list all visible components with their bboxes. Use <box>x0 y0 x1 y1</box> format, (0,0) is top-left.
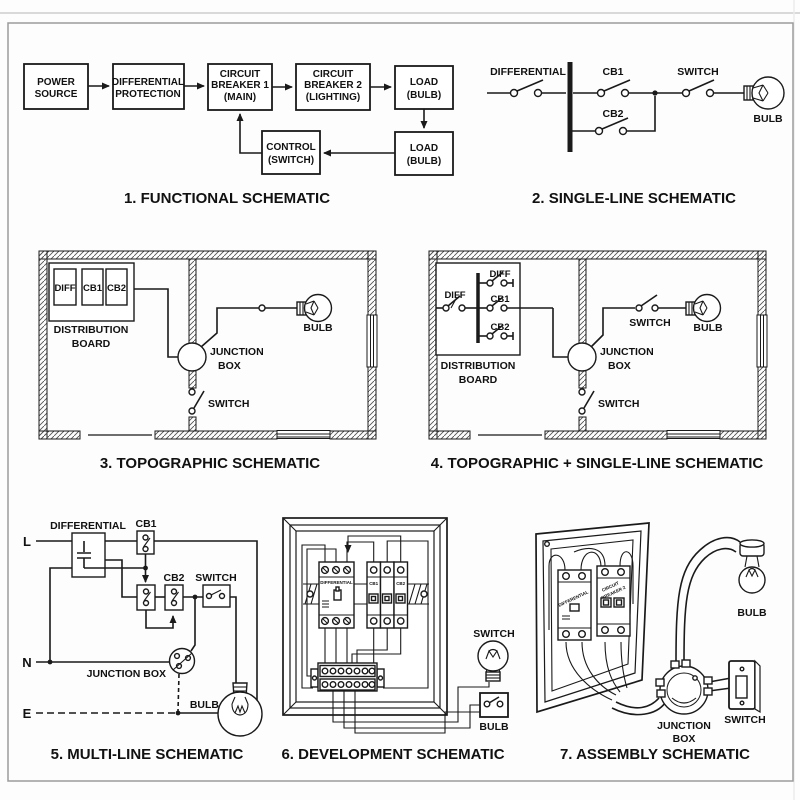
wall-switch <box>189 389 204 414</box>
panel-box <box>536 523 649 712</box>
section-functional-schematic: POWER SOURCE DIFFERENTIAL PROTECTION CIR… <box>24 64 453 207</box>
cb1-label: CB1 <box>602 66 623 78</box>
svg-text:PROTECTION: PROTECTION <box>115 89 181 100</box>
svg-text:LOAD: LOAD <box>410 143 438 154</box>
wall-switch-3d <box>729 661 760 712</box>
cb1-module-label: CB1 <box>369 581 378 586</box>
terminal-block <box>311 663 384 691</box>
caption-functional: 1. FUNCTIONAL SCHEMATIC <box>124 190 330 207</box>
svg-text:BREAKER 1: BREAKER 1 <box>211 80 269 91</box>
svg-text:DISTRIBUTION: DISTRIBUTION <box>54 324 129 336</box>
external-switch <box>480 693 508 717</box>
svg-text:CB2: CB2 <box>163 572 184 584</box>
svg-text:BOARD: BOARD <box>72 338 111 350</box>
section-assembly-schematic: DIFFERENTIAL CIRCUIT BREAKER 2 <box>536 523 767 763</box>
junction-box-3d <box>656 660 712 714</box>
wall-switch <box>579 389 594 414</box>
bulb-symbol <box>218 683 262 736</box>
caption-single-line: 2. SINGLE-LINE SCHEMATIC <box>532 190 736 207</box>
svg-text:CB1: CB1 <box>135 518 156 530</box>
svg-text:CIRCUIT: CIRCUIT <box>313 69 354 80</box>
cb1-contact <box>598 90 605 97</box>
bulb-label: BULB <box>190 699 220 711</box>
svg-text:SWITCH: SWITCH <box>195 572 236 584</box>
caption-topographic: 3. TOPOGRAPHIC SCHEMATIC <box>100 455 320 472</box>
cb2-module-label: CB2 <box>107 283 126 294</box>
cb2-module-label: CB2 <box>396 581 405 586</box>
diff-module-label: DIFF <box>54 283 75 294</box>
svg-text:DISTRIBUTION: DISTRIBUTION <box>441 360 516 372</box>
svg-text:JUNCTION: JUNCTION <box>600 346 654 358</box>
svg-text:BOX: BOX <box>218 360 241 372</box>
switch-contact <box>683 90 690 97</box>
svg-text:BREAKER 2: BREAKER 2 <box>304 80 362 91</box>
caption-assembly: 7. ASSEMBLY SCHEMATIC <box>560 746 750 763</box>
differential-module: DIFFERENTIAL <box>319 562 354 628</box>
svg-text:BOARD: BOARD <box>459 374 498 386</box>
caption-development: 6. DEVELOPMENT SCHEMATIC <box>281 746 504 763</box>
board-to-junction-wire <box>134 289 178 357</box>
switch-label: SWITCH <box>473 628 514 640</box>
section-single-line-schematic: DIFFERENTIAL CB1 CB2 SWITCH BULB 2. SING… <box>487 62 784 207</box>
svg-text:(BULB): (BULB) <box>407 90 441 101</box>
bulb-label: BULB <box>753 113 783 125</box>
rail-n-label: N <box>22 655 31 670</box>
svg-text:DIFFERENTIAL: DIFFERENTIAL <box>112 77 184 88</box>
bulb-symbol <box>297 295 332 322</box>
bulb-label: BULB <box>479 721 509 733</box>
bulb-symbol <box>744 77 784 109</box>
switch-room-label: SWITCH <box>629 317 670 329</box>
caption-topo-single: 4. TOPOGRAPHIC + SINGLE-LINE SCHEMATIC <box>431 455 764 472</box>
bulb-label: BULB <box>303 322 333 334</box>
svg-text:LOAD: LOAD <box>410 77 438 88</box>
bulb-label: BULB <box>693 322 723 334</box>
differential-contact <box>511 90 518 97</box>
svg-text:JUNCTION: JUNCTION <box>657 720 711 732</box>
junction-box-label: JUNCTION BOX <box>87 668 166 680</box>
cb-modules: CB1 CB2 <box>367 562 408 628</box>
differential-box <box>72 533 105 577</box>
svg-text:(BULB): (BULB) <box>407 156 441 167</box>
switch-label: SWITCH <box>208 398 249 410</box>
section-multi-line-schematic: L N E DIFFERENTIAL CB1 CB2 <box>22 518 262 763</box>
power-source-label: POWER <box>37 77 76 88</box>
cb2-contact <box>596 128 603 135</box>
junction-to-bulb-wire <box>201 308 297 347</box>
switch-label: SWITCH <box>677 66 718 78</box>
bulb-symbol <box>478 641 508 681</box>
cb2-label: CB2 <box>602 108 623 120</box>
diagram-page: POWER SOURCE DIFFERENTIAL PROTECTION CIR… <box>0 0 800 800</box>
svg-text:(SWITCH): (SWITCH) <box>268 155 314 166</box>
schematics-poster: POWER SOURCE DIFFERENTIAL PROTECTION CIR… <box>0 0 800 800</box>
rail-e-label: E <box>23 706 32 721</box>
svg-text:(MAIN): (MAIN) <box>224 92 256 103</box>
svg-text:BOX: BOX <box>608 360 631 372</box>
differential-module-label: DIFFERENTIAL <box>320 580 353 585</box>
circuit-breaker-2-3d: CIRCUIT BREAKER 2 <box>597 566 630 636</box>
section-topographic-schematic: DIFF CB1 CB2 DISTRIBUTION BOARD JUNCTION… <box>39 251 377 472</box>
svg-text:DIFFERENTIAL: DIFFERENTIAL <box>50 520 126 532</box>
svg-text:CONTROL: CONTROL <box>266 142 315 153</box>
bulb-label: BULB <box>737 607 767 619</box>
junction-box <box>170 649 195 674</box>
cb1-module-label: CB1 <box>83 283 103 294</box>
svg-text:JUNCTION: JUNCTION <box>210 346 264 358</box>
svg-text:SOURCE: SOURCE <box>35 89 78 100</box>
differential-breaker-3d: DIFFERENTIAL <box>558 570 591 640</box>
ceiling-lamp <box>739 540 765 593</box>
bulb-symbol <box>686 295 721 322</box>
section-development-schematic: DIFFERENTIAL CB1 CB2 <box>281 518 514 763</box>
switch-label: SWITCH <box>724 714 765 726</box>
svg-text:CIRCUIT: CIRCUIT <box>220 69 261 80</box>
differential-label: DIFFERENTIAL <box>490 66 566 78</box>
board-to-junction-wire <box>553 308 568 357</box>
svg-text:(LIGHTING): (LIGHTING) <box>306 92 360 103</box>
section-topo-single-line-schematic: DISTRIBUTION BOARD DIFF DIFF CB1 CB2 <box>429 251 767 472</box>
switch-below-label: SWITCH <box>598 398 639 410</box>
svg-text:BOX: BOX <box>673 733 696 745</box>
rail-l-label: L <box>23 534 31 549</box>
caption-multi-line: 5. MULTI-LINE SCHEMATIC <box>51 746 244 763</box>
